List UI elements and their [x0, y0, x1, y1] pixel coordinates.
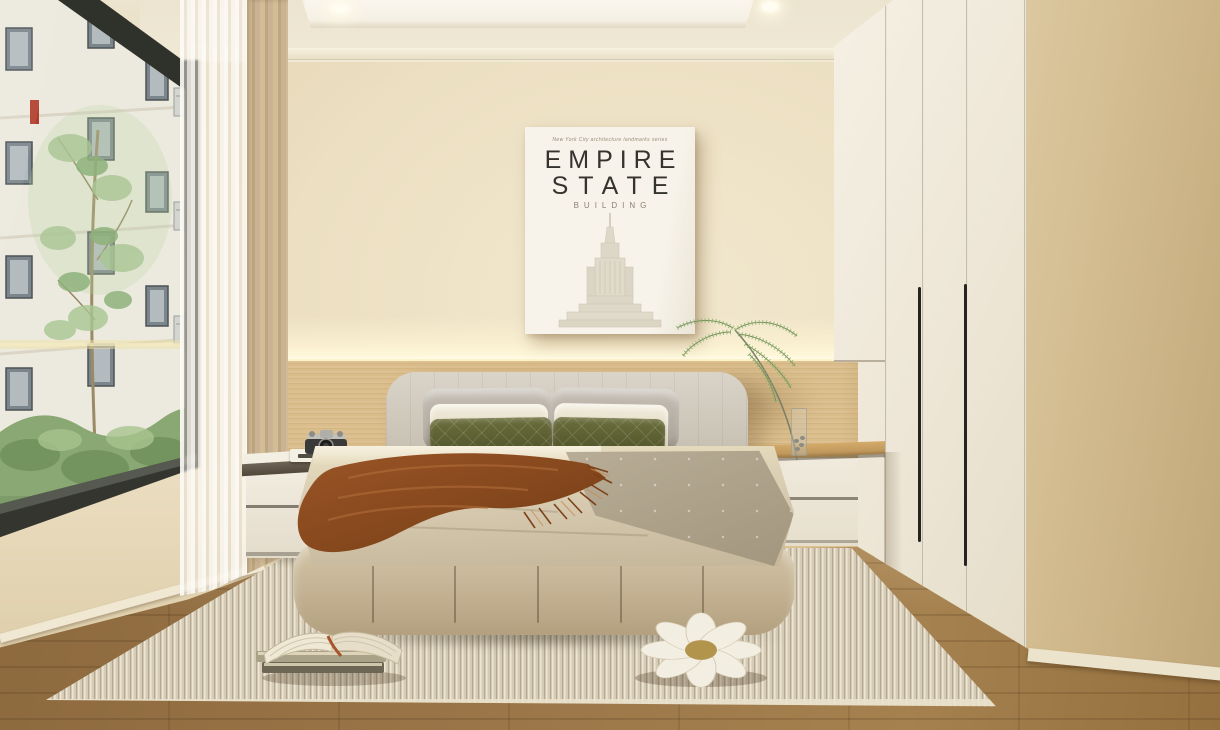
daisy-flower-pouf: [614, 604, 788, 694]
ceiling-recessed-tray: [302, 0, 754, 28]
poster-subtitle: BUILDING: [525, 201, 695, 210]
wardrobe-door-handle: [918, 287, 921, 542]
recessed-spotlight: [762, 2, 778, 11]
wardrobe-upper-cabinet-seam: [834, 360, 885, 362]
right-wall: [1026, 0, 1220, 730]
wardrobe-door-handle: [964, 284, 967, 566]
recessed-spotlight: [332, 4, 348, 13]
vase-pebble: [800, 436, 805, 440]
poster-title-line2: STATE: [525, 172, 695, 201]
pouf-petals: [641, 613, 761, 687]
poster-title-line1: EMPIRE: [525, 146, 695, 175]
sheer-curtain: [180, 0, 247, 596]
pouf-brass-center: [685, 640, 717, 660]
poster-series-label: New York City architecture landmarks ser…: [525, 137, 695, 143]
vase-pebble: [799, 443, 804, 447]
vase-pebble: [794, 439, 799, 443]
wardrobe-panel-seam: [922, 0, 924, 662]
open-book-stack: [248, 606, 420, 688]
rust-throw-blanket: [288, 438, 648, 588]
window-city-view: [0, 0, 200, 560]
bedroom-interior-photo: New York City architecture landmarks ser…: [0, 0, 1220, 730]
glass-vase: [791, 408, 807, 456]
vase-pebble: [795, 447, 800, 451]
